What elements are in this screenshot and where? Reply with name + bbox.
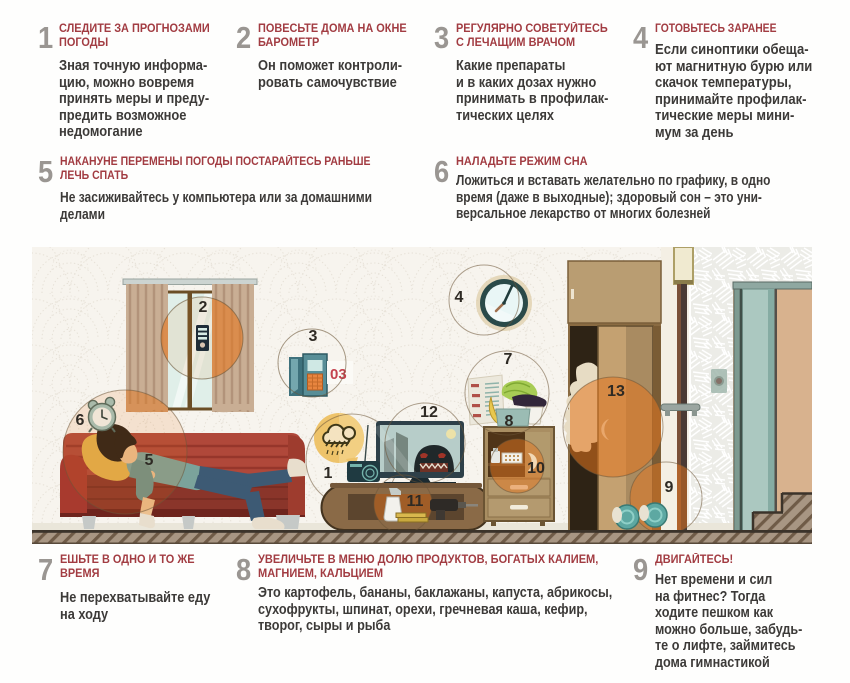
svg-text:10: 10 (527, 460, 545, 477)
svg-text:5: 5 (145, 452, 154, 469)
svg-text:2: 2 (199, 299, 208, 316)
svg-text:3: 3 (309, 328, 318, 345)
svg-text:13: 13 (607, 383, 625, 400)
svg-text:11: 11 (407, 493, 424, 510)
svg-text:12: 12 (420, 404, 438, 421)
svg-text:7: 7 (504, 351, 513, 368)
svg-text:6: 6 (76, 412, 85, 429)
svg-text:8: 8 (505, 413, 514, 430)
svg-text:1: 1 (324, 465, 333, 482)
svg-text:9: 9 (665, 479, 674, 496)
svg-text:4: 4 (455, 289, 464, 306)
